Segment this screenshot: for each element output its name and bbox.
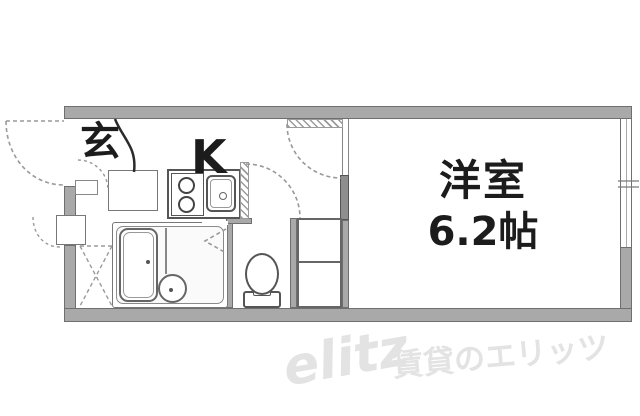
toilet-door-panel: [240, 162, 249, 219]
bathtub: [119, 228, 158, 302]
bathtub-inner: [123, 232, 154, 298]
storage-shelf-upper: [297, 218, 342, 263]
shoe-cabinet: [108, 170, 158, 211]
room-door-arc: [287, 124, 341, 178]
kitchen-label: K: [191, 134, 227, 180]
entrance-door-arc: [6, 121, 64, 185]
wall-right-lower: [620, 247, 632, 309]
bath-partition-line: [165, 228, 167, 274]
wall-bottom: [64, 308, 632, 322]
wall-left-lower: [64, 245, 76, 309]
bathtub-drain-dot: [146, 260, 150, 264]
entrance-step: [75, 180, 98, 195]
toilet-bowl: [245, 253, 279, 295]
window-frame: [620, 119, 632, 247]
room-door-panel: [287, 119, 343, 128]
meter-box: [56, 215, 86, 245]
room-divider-lower: [342, 220, 349, 308]
room-divider-thick: [340, 175, 349, 220]
sink-drain: [219, 192, 227, 200]
watermark-caption: 賃貸のエリッツ: [391, 333, 610, 383]
main-room-label: 洋室: [398, 160, 568, 202]
entrance-label: 玄: [80, 122, 120, 162]
washbasin-drain-dot: [169, 288, 173, 292]
window-inner-line: [626, 119, 627, 247]
stove-burner-2: [178, 196, 195, 213]
main-room-size-label: 6.2帖: [398, 212, 568, 252]
storage-shelf-lower: [297, 261, 342, 308]
bath-door-gap: [202, 221, 228, 225]
floor-plan: 玄 K 洋室 6.2帖 elitz 賃貸のエリッツ: [0, 0, 640, 416]
toilet-door-arc: [246, 164, 300, 218]
laundry-space-x: [80, 246, 112, 306]
toilet-right-wall: [290, 218, 297, 308]
wall-top: [64, 106, 632, 119]
room-door-opening: [342, 119, 349, 176]
